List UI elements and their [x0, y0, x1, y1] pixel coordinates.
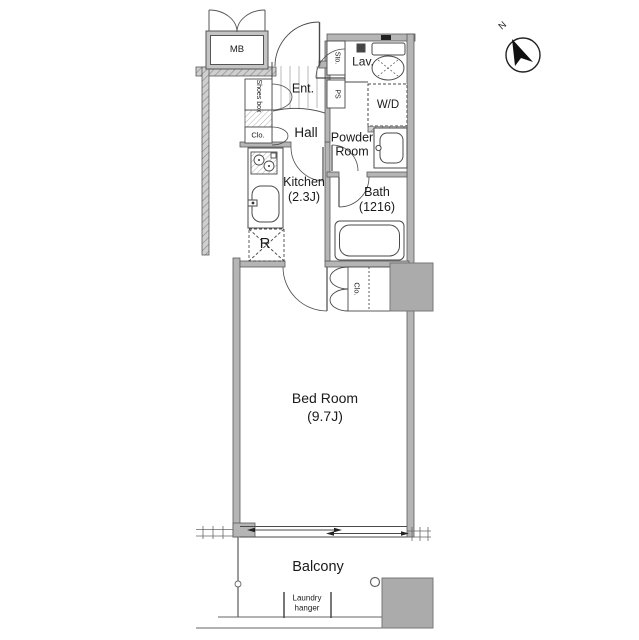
shoes-box-label: Shoes box [254, 79, 262, 113]
bedroom-closet-label: Clo. [352, 282, 361, 295]
balcony-rail [196, 537, 382, 628]
storage-label: Sto. [332, 52, 341, 64]
bedroom-label: Bed Room (9.7J) [292, 389, 358, 425]
pipe-space-label: PS [332, 89, 341, 98]
balcony-drain [371, 578, 380, 587]
floorplan-drawing [0, 0, 639, 640]
entrance-label: Ent. [292, 81, 314, 96]
meter-box [206, 10, 268, 69]
hall-label: Hall [294, 125, 317, 141]
floorplan-canvas: MB Shoes box Sto. PS Ent. Lav. W/D Clo. … [0, 0, 639, 640]
washer-dryer-label: W/D [377, 98, 399, 112]
mb-label: MB [230, 44, 244, 56]
shoes-box [245, 79, 292, 110]
kitchen-label: Kitchen (2.3J) [283, 175, 325, 206]
balcony-window [240, 527, 409, 538]
kitchen-sink [248, 186, 279, 222]
balcony-utility-box [382, 578, 433, 628]
balcony-label: Balcony [292, 559, 344, 577]
lavatory-label: Lav. [352, 55, 374, 70]
bathtub [335, 221, 404, 260]
north-compass-icon [506, 38, 540, 72]
balcony-divider-left [196, 526, 233, 539]
laundry-hanger-label: Laundry hanger [285, 593, 329, 612]
gas-stove [251, 152, 277, 174]
entrance-door [275, 22, 320, 66]
bedroom-door [283, 267, 327, 311]
structural-pillar [390, 263, 433, 311]
hall-closet-label: Clo. [251, 130, 264, 139]
refrigerator-label: R [260, 236, 270, 254]
bath-label: Bath (1216) [359, 185, 395, 216]
powder-room-label: Powder Room [322, 131, 382, 160]
